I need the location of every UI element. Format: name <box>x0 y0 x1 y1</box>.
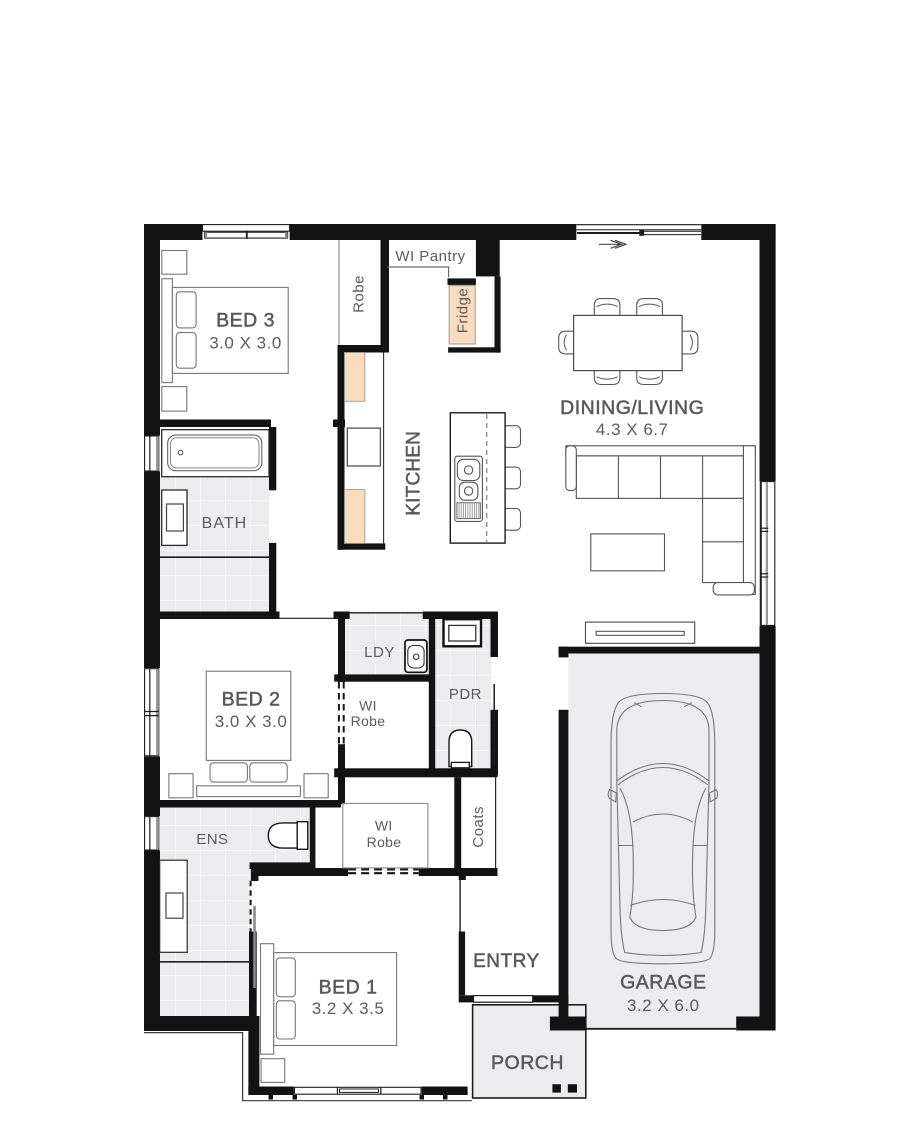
svg-text:BED 1: BED 1 <box>319 977 378 999</box>
svg-text:BED 2: BED 2 <box>222 689 281 711</box>
svg-text:3.0 X 3.0: 3.0 X 3.0 <box>209 334 282 353</box>
svg-text:Robe: Robe <box>351 713 386 729</box>
svg-text:PORCH: PORCH <box>491 1052 564 1074</box>
svg-text:Robe: Robe <box>351 275 368 313</box>
svg-text:3.2 X 6.0: 3.2 X 6.0 <box>627 996 700 1015</box>
svg-text:Robe: Robe <box>367 834 402 850</box>
svg-text:GARAGE: GARAGE <box>620 972 706 994</box>
svg-text:KITCHEN: KITCHEN <box>404 431 425 516</box>
svg-text:ENS: ENS <box>196 831 228 848</box>
svg-text:BED 3: BED 3 <box>216 310 275 332</box>
svg-text:LDY: LDY <box>364 644 395 661</box>
svg-text:Coats: Coats <box>470 806 487 848</box>
svg-text:WI: WI <box>375 818 393 834</box>
svg-text:WI Pantry: WI Pantry <box>395 248 465 265</box>
svg-text:BATH: BATH <box>202 515 247 532</box>
svg-text:ENTRY: ENTRY <box>473 951 540 972</box>
svg-text:PDR: PDR <box>449 686 482 703</box>
svg-text:DINING/LIVING: DINING/LIVING <box>560 397 704 419</box>
svg-text:4.3 X 6.7: 4.3 X 6.7 <box>596 420 669 439</box>
svg-text:3.0 X 3.0: 3.0 X 3.0 <box>215 712 288 731</box>
svg-text:Fridge: Fridge <box>454 288 471 334</box>
svg-text:3.2 X 3.5: 3.2 X 3.5 <box>312 999 385 1018</box>
svg-text:WI: WI <box>359 698 377 714</box>
